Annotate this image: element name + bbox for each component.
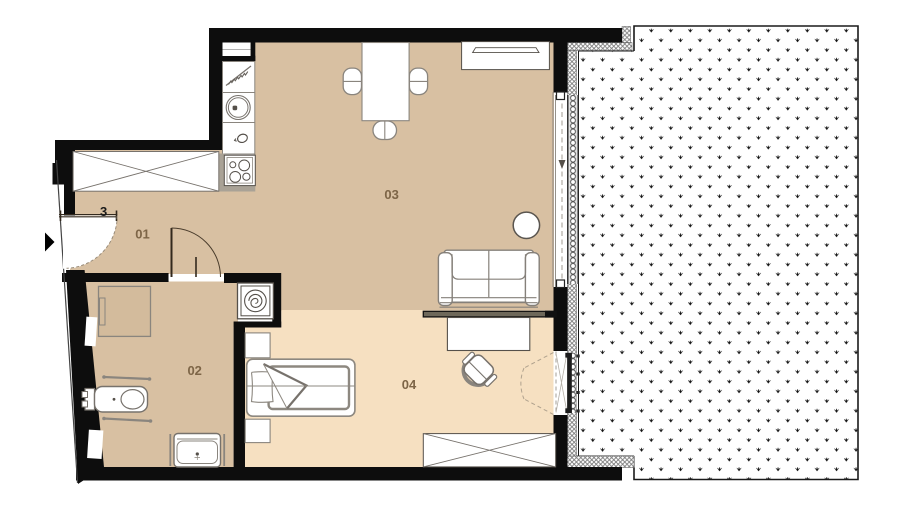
svg-text:04: 04 bbox=[402, 377, 417, 392]
svg-text:01: 01 bbox=[135, 227, 149, 242]
svg-text:03: 03 bbox=[384, 187, 398, 202]
svg-text:3: 3 bbox=[100, 204, 107, 219]
svg-text:02: 02 bbox=[187, 363, 201, 378]
